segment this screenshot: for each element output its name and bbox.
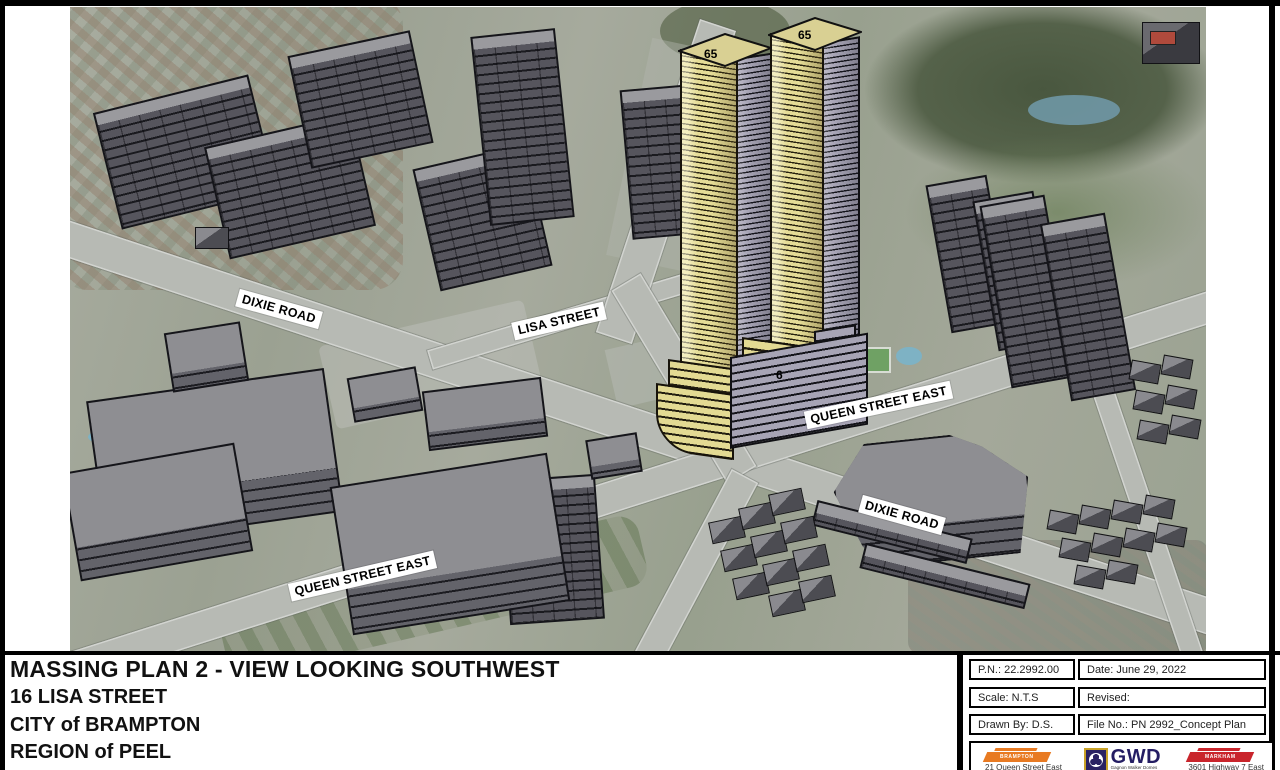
file-number-field: File No.: PN 2992_Concept Plan: [1078, 714, 1266, 735]
townhouse-block: [768, 488, 806, 517]
brampton-address: 21 Queen Street East: [985, 764, 1062, 770]
brampton-office-logo: BRAMPTON 21 Queen Street East: [985, 748, 1062, 770]
gwd-logo: GWD Gagnon Walker Domes: [1084, 748, 1167, 770]
drawing-title: MASSING PLAN 2 - VIEW LOOKING SOUTHWEST: [10, 655, 560, 684]
townhouse-block: [792, 544, 830, 573]
drawing-address: 16 LISA STREET: [10, 684, 560, 712]
house-block: [1046, 510, 1079, 535]
house-block: [1164, 385, 1197, 410]
drawing-city: CITY of BRAMPTON: [10, 712, 560, 740]
markham-address: 3601 Highway 7 East: [1188, 764, 1264, 770]
house-block: [1078, 505, 1111, 530]
project-number-field: P.N.: 22.2992.00: [969, 659, 1075, 680]
existing-building: [195, 227, 229, 249]
scale-field: Scale: N.T.S: [969, 687, 1075, 708]
tower1-storey-label: 65: [704, 47, 717, 61]
markham-banner-label: MARKHAM: [1205, 754, 1236, 760]
titleblock-divider: [957, 651, 963, 770]
markham-office-logo: MARKHAM 3601 Highway 7 East: [1188, 748, 1264, 770]
brampton-banner-label: BRAMPTON: [1000, 754, 1034, 760]
red-roof-building: [1150, 31, 1176, 45]
house-block: [1136, 420, 1169, 445]
markham-banner-stripe: [1198, 748, 1241, 751]
drawn-by-field: Drawn By: D.S.: [969, 714, 1075, 735]
aerial-photo-view: 65 65 6 DIXIE ROAD LISA STREET QUEEN STR…: [70, 7, 1206, 651]
proposed-tower1-yellow-face: [680, 49, 738, 398]
existing-commercial-building: [164, 321, 249, 392]
proposed-tower2-roof: [768, 17, 862, 51]
house-block: [1132, 390, 1165, 415]
street-label-lisa: LISA STREET: [511, 302, 607, 341]
border-top: [0, 0, 1280, 6]
brampton-banner-stripe: [994, 748, 1037, 751]
gwd-emblem-icon: [1084, 748, 1108, 770]
pond: [1028, 95, 1120, 125]
revised-field: Revised:: [1078, 687, 1266, 708]
proposed-tower1-roof: [678, 33, 772, 67]
logo-strip: BRAMPTON 21 Queen Street East GWD Gagnon…: [969, 741, 1274, 770]
gwd-acronym: GWD: [1111, 748, 1167, 766]
date-field: Date: June 29, 2022: [1078, 659, 1266, 680]
pond: [896, 347, 922, 365]
house-block: [1160, 355, 1193, 380]
titleblock-titles: MASSING PLAN 2 - VIEW LOOKING SOUTHWEST …: [10, 655, 560, 767]
drawing-sheet: 65 65 6 DIXIE ROAD LISA STREET QUEEN STR…: [0, 0, 1280, 770]
tower2-storey-label: 65: [798, 28, 811, 42]
house-block: [1168, 415, 1201, 440]
townhouse-block: [798, 575, 836, 604]
markham-banner: MARKHAM: [1186, 752, 1254, 762]
townhouse-block: [780, 516, 818, 545]
existing-commercial-building: [585, 432, 643, 480]
podium-storey-label: 6: [776, 368, 783, 382]
brampton-banner: BRAMPTON: [983, 752, 1051, 762]
house-block: [1110, 500, 1143, 525]
existing-building: [287, 30, 433, 168]
gwd-clover-icon: [1089, 753, 1103, 767]
drawing-region: REGION of PEEL: [10, 739, 560, 767]
